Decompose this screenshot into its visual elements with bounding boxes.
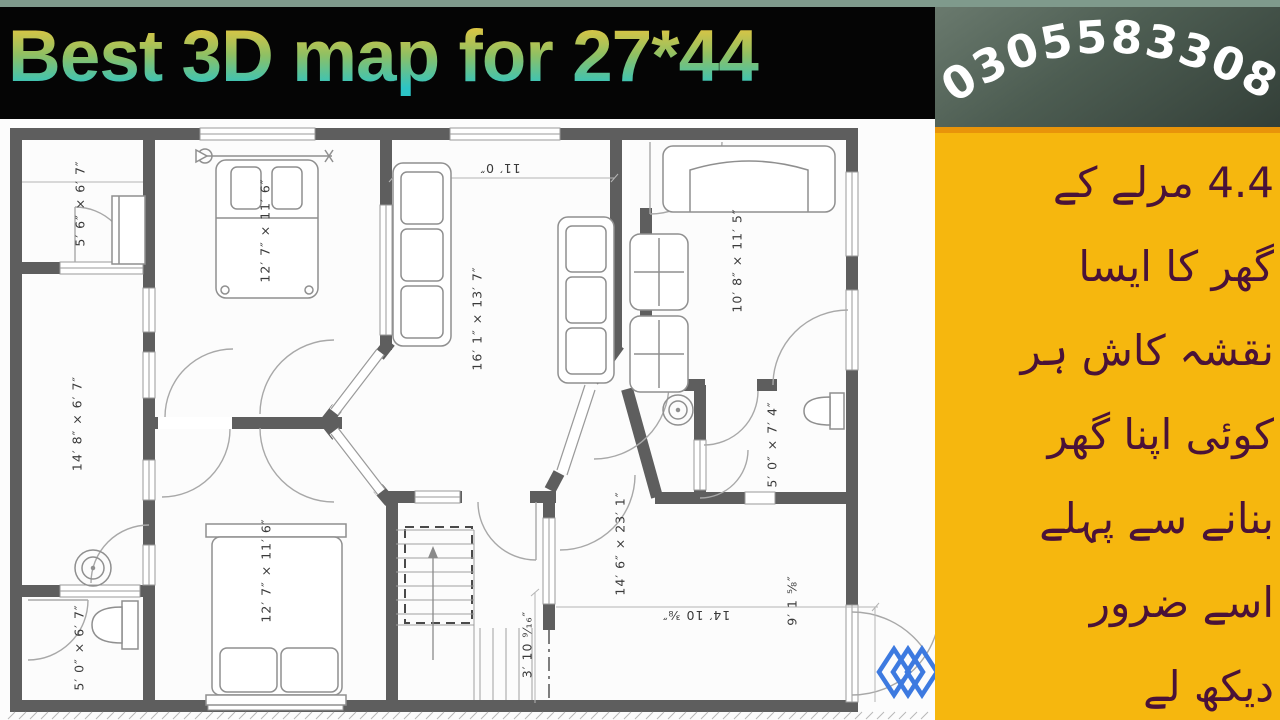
bed-icon: [206, 524, 346, 705]
room-label-bath-top: 5′ 6″ × 6′ 7″: [73, 119, 88, 289]
urdu-line: کوئی اپنا گھر: [947, 393, 1274, 477]
closet-icon: [112, 196, 145, 264]
room-label-lounge: 14′ 6″ × 23′ 1″: [613, 459, 628, 629]
stairs-up-arrow: [428, 546, 438, 558]
room-label-drawing: 10′ 8″ × 11′ 5″: [730, 176, 745, 346]
urdu-line: دیکھ لے: [947, 645, 1274, 720]
dim-label-lounge-width: 14′ 10 ⅜″: [611, 608, 781, 623]
urdu-text-block: 4.4 مرلے کے گھر کا ایسا نقشہ کاش ہر کوئی…: [935, 133, 1280, 720]
urdu-line: نقشہ کاش ہر: [947, 309, 1274, 393]
toilet-icon: [92, 601, 138, 649]
side-panel: 4.4 مرلے کے گھر کا ایسا نقشہ کاش ہر کوئی…: [935, 127, 1280, 720]
room-label-bath-right: 5′ 0″ × 7′ 4″: [765, 360, 780, 530]
room-label-living: 16′ 1″ × 13′ 7″: [470, 234, 485, 404]
dim-label-stair: 3′ 10 ⁹⁄₁₆″: [520, 560, 535, 720]
room-label-bedroom-top: 12′ 7″ × 11′ 6″: [258, 146, 273, 316]
phone-number: 03055833087: [935, 0, 1280, 113]
sofa-icon: [663, 146, 835, 212]
urdu-line: بنانے سے پہلے: [947, 477, 1274, 561]
sofa-icon: [393, 163, 451, 346]
toilet-icon: [804, 393, 844, 429]
dim-label-lounge-height: 9′ 1 ⅝″: [785, 516, 800, 686]
phone-corner: 03055833087: [935, 0, 1280, 127]
phone-arc-svg: 03055833087: [935, 0, 1280, 127]
title-bar: Best 3D map for 27*44: [0, 7, 935, 119]
thumbnail-page: Best 3D map for 27*44 03055833087 4.4 مر…: [0, 0, 1280, 720]
armchair-icon: [630, 234, 688, 392]
room-label-kitchen: 14′ 8″ × 6′ 7″: [70, 339, 85, 509]
watermark-logo: [879, 649, 937, 695]
urdu-line: گھر کا ایسا: [947, 225, 1274, 309]
room-label-bath-bottom: 5′ 0″ × 6′ 7″: [72, 563, 87, 720]
top-strip: [0, 0, 1280, 7]
dim-label-11-0: 11′ 0″: [415, 161, 585, 176]
svg-text:03055833087: 03055833087: [935, 0, 1280, 113]
urdu-line: اسے ضرور: [947, 561, 1274, 645]
sink-icon: [663, 395, 693, 425]
sofa-icon: [558, 217, 614, 383]
urdu-line: 4.4 مرلے کے: [947, 141, 1274, 225]
ground-hatch: [8, 712, 928, 719]
page-title: Best 3D map for 27*44: [8, 15, 933, 98]
room-label-bedroom-bottom: 12′ 7″ × 11′ 6″: [259, 486, 274, 656]
